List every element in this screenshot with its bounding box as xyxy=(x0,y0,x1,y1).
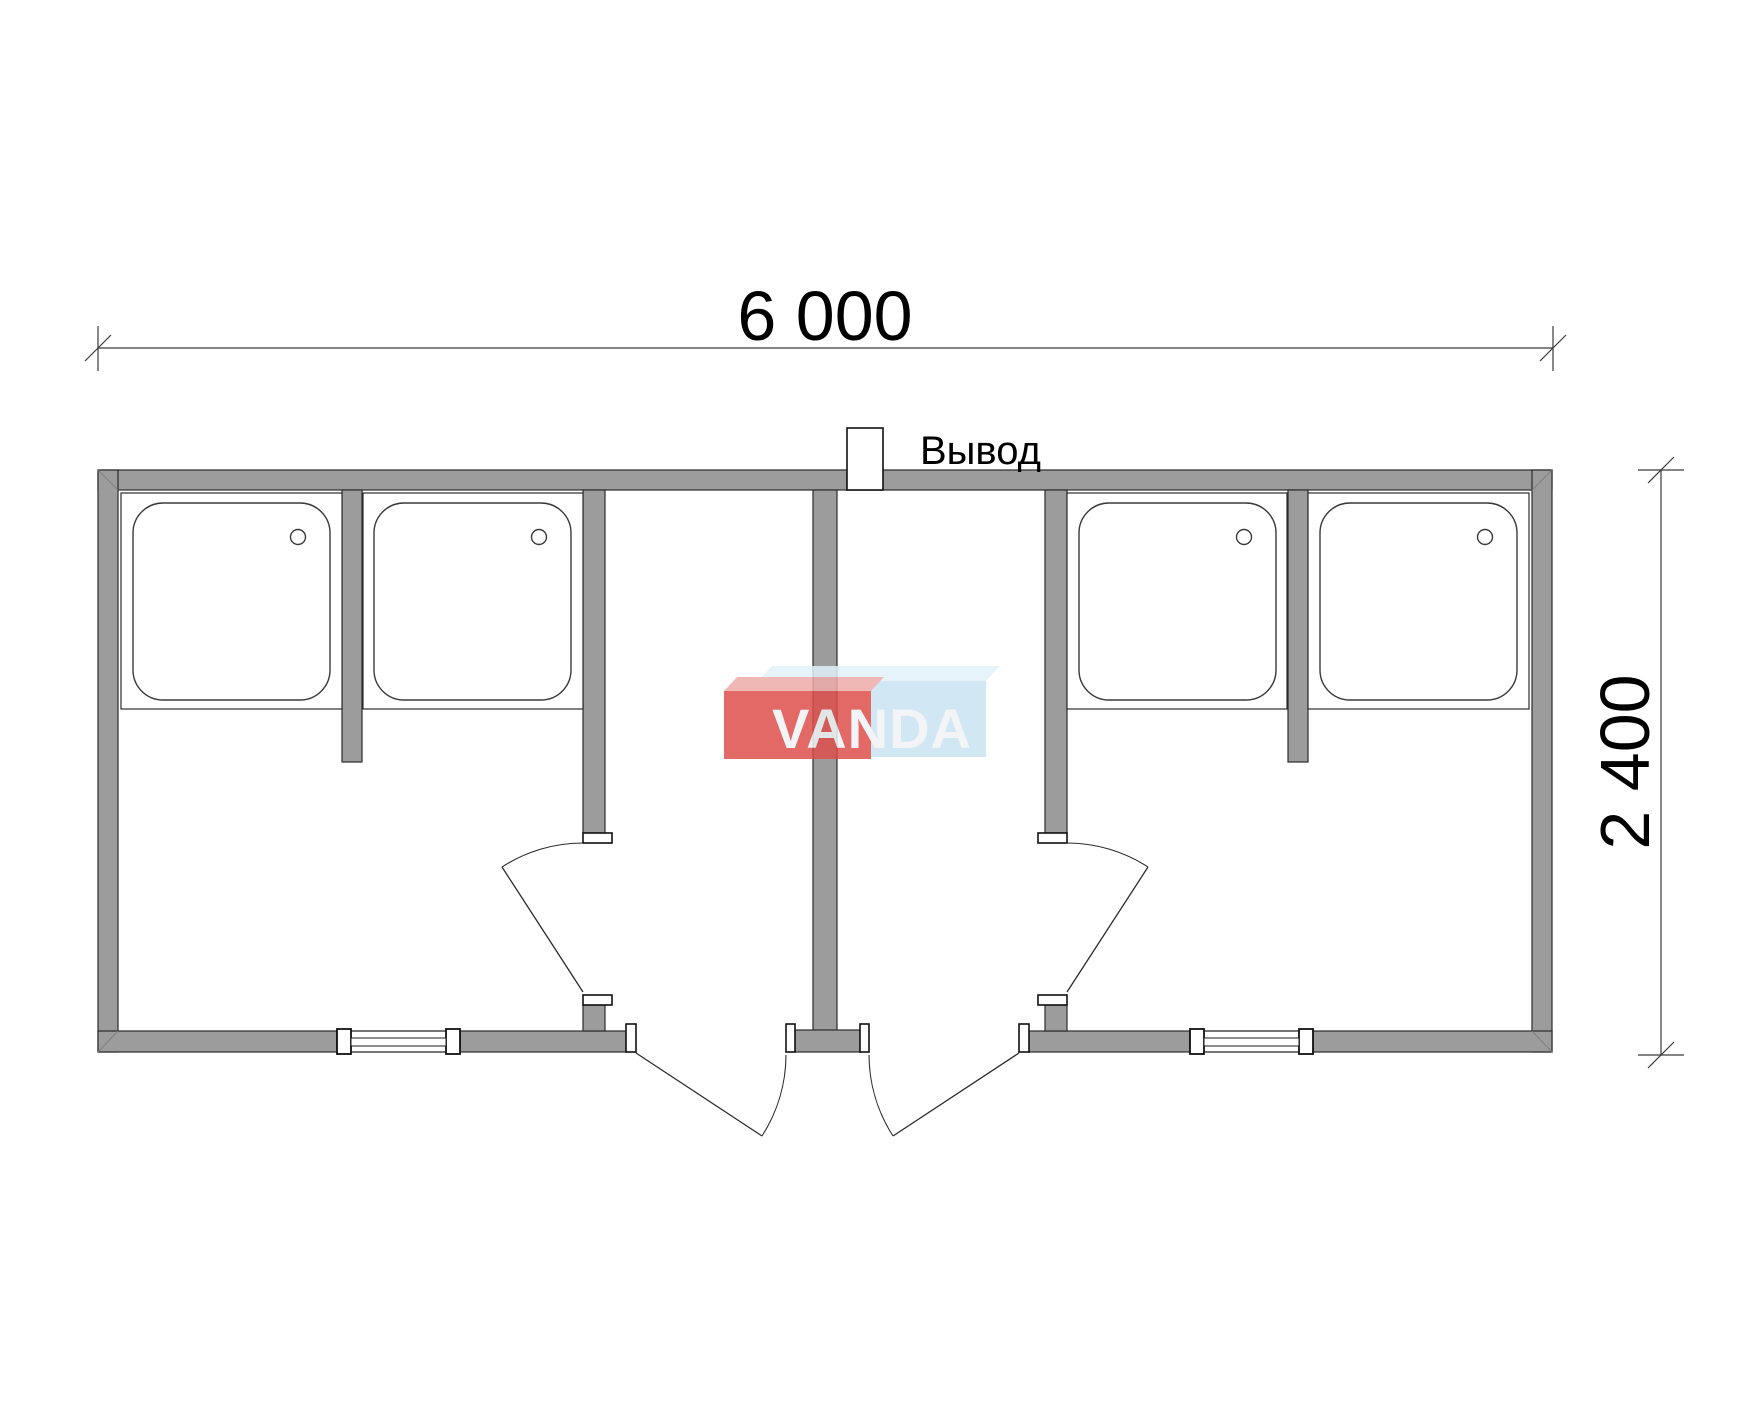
watermark-logo: VANDA xyxy=(724,666,1000,760)
partition-stall-divider-right xyxy=(1288,490,1308,762)
door-jamb xyxy=(583,833,612,843)
drain-icon xyxy=(1237,530,1252,545)
wall-bottom-segment-2 xyxy=(460,1031,626,1052)
width-dimension-label: 2 400 xyxy=(1586,674,1664,849)
partition-center-wall-foot xyxy=(795,1030,860,1052)
partition-center-wall xyxy=(813,490,837,1031)
interior-door-right xyxy=(1038,833,1148,1005)
door-leaf xyxy=(893,1053,1019,1136)
wall-bottom-segment-4 xyxy=(1313,1031,1552,1052)
window-end-block xyxy=(1190,1029,1204,1054)
door-leaf xyxy=(502,867,583,992)
door-jamb xyxy=(583,995,612,1005)
window-end-block xyxy=(337,1029,351,1054)
dimension-right: 2 400 xyxy=(1586,457,1684,1068)
wall-left xyxy=(98,470,118,1052)
dimension-top: 6 000 xyxy=(85,277,1566,371)
door-swing-arc xyxy=(869,1055,893,1136)
door-swing-arc xyxy=(502,843,583,867)
drain-icon xyxy=(532,530,547,545)
wall-bottom-segment-3 xyxy=(1029,1031,1190,1052)
window-sash xyxy=(351,1038,446,1046)
interior-door-left xyxy=(502,833,612,1005)
door-swing-arc xyxy=(762,1055,786,1136)
door-jamb xyxy=(860,1024,869,1052)
wall-right xyxy=(1532,470,1552,1052)
wall-bottom-segment-1 xyxy=(98,1031,337,1052)
door-leaf xyxy=(636,1053,762,1136)
door-wall-stub-left xyxy=(583,1005,605,1031)
floor-plan-drawing: 6 000 2 400 xyxy=(0,0,1763,1413)
outlet-label: Вывод xyxy=(920,429,1041,473)
door-wall-stub-right xyxy=(1045,1005,1067,1031)
wall-top xyxy=(98,470,1552,490)
door-jamb xyxy=(626,1024,636,1052)
partition-stall-divider-left xyxy=(342,490,362,762)
window-end-block xyxy=(446,1029,460,1054)
logo-text: VANDA xyxy=(772,697,972,760)
floor-plan-page: 6 000 2 400 xyxy=(0,0,1763,1413)
logo-red-top-face xyxy=(724,677,884,691)
partition-door-wall-left xyxy=(583,490,605,833)
length-dimension-label: 6 000 xyxy=(737,277,912,355)
window-left xyxy=(337,1029,460,1054)
window-sash xyxy=(1204,1038,1299,1046)
partition-door-wall-right xyxy=(1045,490,1067,833)
exterior-door-left xyxy=(626,1024,795,1136)
door-jamb xyxy=(786,1024,795,1052)
door-leaf xyxy=(1067,867,1148,992)
window-end-block xyxy=(1299,1029,1313,1054)
door-jamb xyxy=(1038,995,1067,1005)
door-jamb xyxy=(1038,833,1067,843)
door-swing-arc xyxy=(1067,843,1148,867)
drain-icon xyxy=(1478,530,1493,545)
door-jamb xyxy=(1019,1024,1029,1052)
window-right xyxy=(1190,1029,1313,1054)
outlet-stub xyxy=(847,428,883,490)
drain-icon xyxy=(291,530,306,545)
exterior-door-right xyxy=(860,1024,1029,1136)
